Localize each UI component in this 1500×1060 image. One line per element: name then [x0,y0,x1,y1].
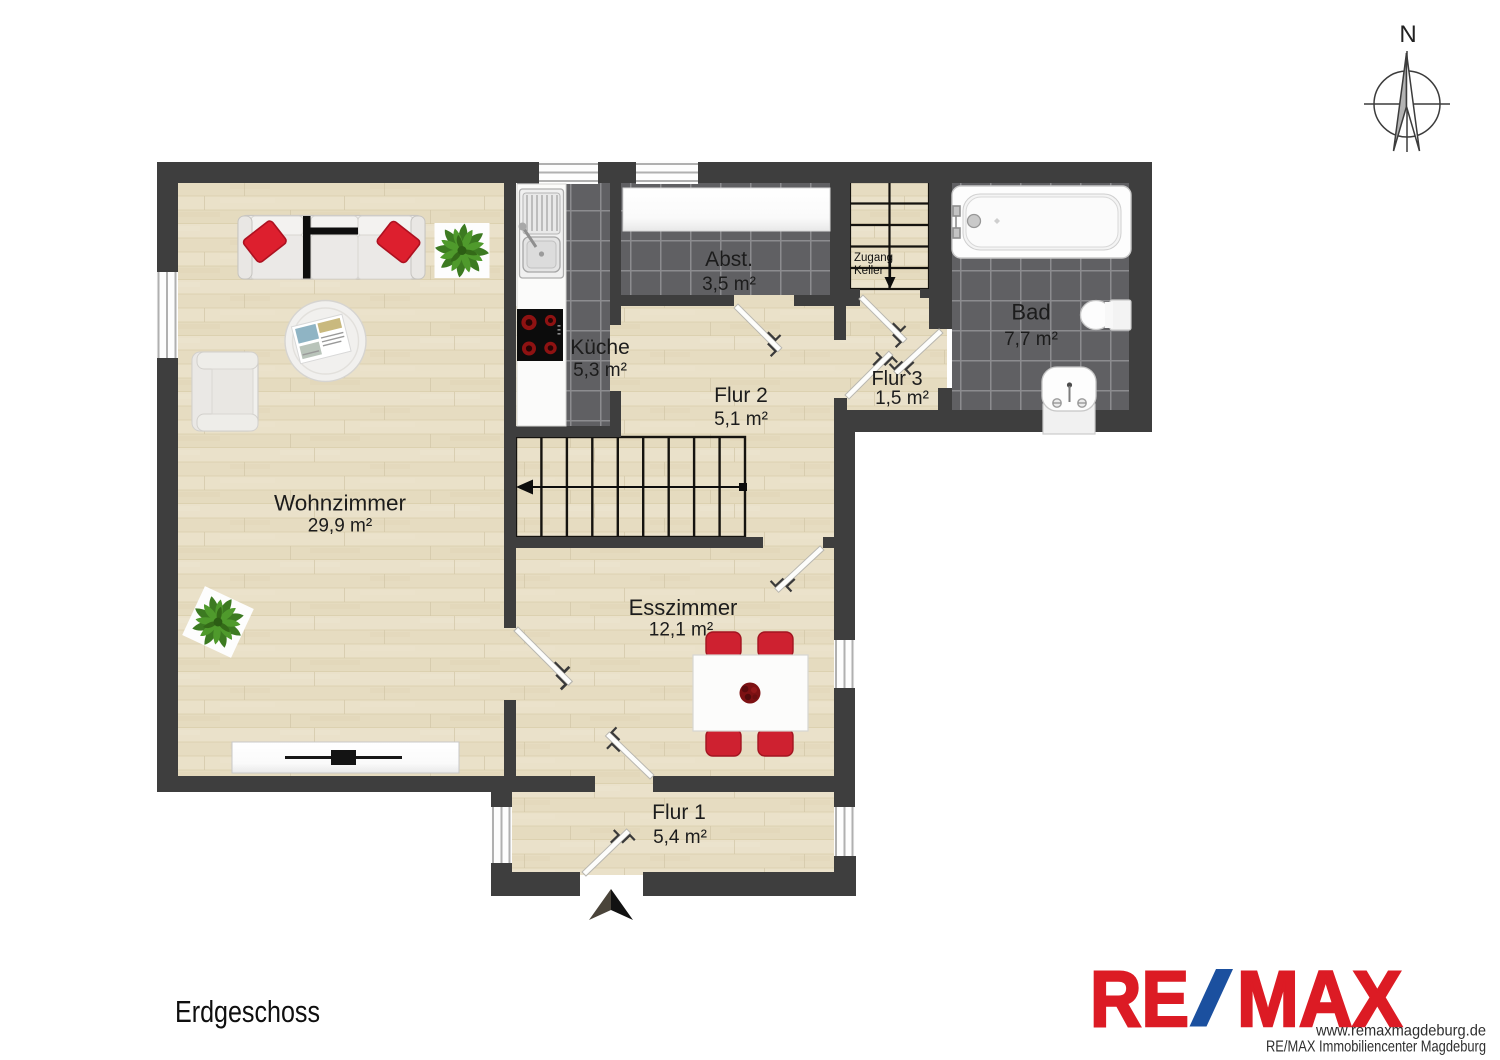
svg-text:Bad: Bad [1011,300,1050,325]
svg-text:Flur 1: Flur 1 [652,801,706,824]
svg-text:Esszimmer: Esszimmer [629,595,738,620]
svg-text:Küche: Küche [570,336,630,359]
svg-text:Erdgeschoss: Erdgeschoss [175,994,320,1029]
svg-text:Flur 2: Flur 2 [714,384,768,407]
svg-text:12,1 m²: 12,1 m² [649,620,713,641]
svg-text:RE/MAX Immobiliencenter Magdeb: RE/MAX Immobiliencenter Magdeburg [1266,1039,1486,1056]
svg-text:5,3 m²: 5,3 m² [573,360,627,381]
svg-text:N: N [1399,21,1416,48]
svg-text:www.remaxmagdeburg.de: www.remaxmagdeburg.de [1315,1023,1486,1040]
svg-text:3,5 m²: 3,5 m² [702,274,756,295]
svg-text:Abst.: Abst. [705,248,753,271]
svg-text:RE: RE [1090,954,1189,1043]
svg-text:29,9 m²: 29,9 m² [308,516,372,537]
svg-text:Zugang: Zugang [854,252,893,264]
svg-text:1,5 m²: 1,5 m² [875,388,929,409]
svg-text:Keller: Keller [854,265,884,277]
svg-text:5,4 m²: 5,4 m² [653,827,707,848]
svg-text:Wohnzimmer: Wohnzimmer [274,491,407,516]
svg-text:Flur 3: Flur 3 [871,368,922,390]
svg-text:5,1 m²: 5,1 m² [714,409,768,430]
svg-text:7,7 m²: 7,7 m² [1004,329,1058,350]
